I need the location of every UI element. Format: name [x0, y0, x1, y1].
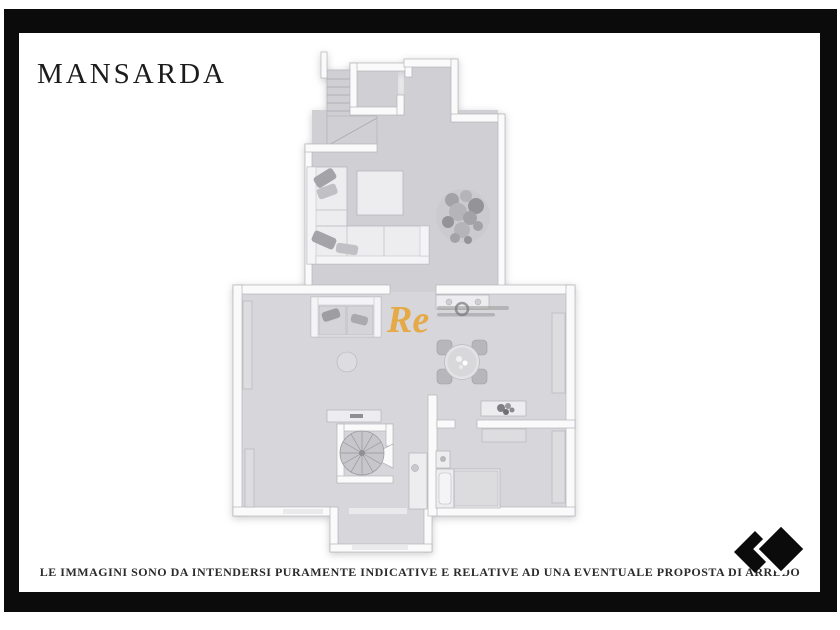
spiral-staircase [340, 431, 384, 475]
left-wall-radiator-top [243, 301, 252, 389]
watermark-company-text [437, 306, 509, 310]
window-band [283, 509, 323, 514]
agency-logo [725, 518, 815, 582]
wardrobe [409, 453, 427, 509]
desk-with-plant [481, 401, 526, 416]
dining-set [437, 340, 487, 384]
entry-landing-floor [356, 70, 398, 108]
right-wall-cabinet-top [552, 313, 565, 393]
single-bed [436, 469, 500, 508]
page: { "header": { "title": "MANSARDA" }, "wa… [0, 0, 840, 630]
right-wall-cabinet-bottom [552, 431, 565, 503]
balcony-door-window [349, 508, 407, 514]
balcony-window [352, 545, 408, 550]
console-shelf [327, 410, 381, 422]
round-pouf [337, 352, 357, 372]
double-diamond-icon [734, 524, 806, 574]
page-title: MANSARDA [37, 58, 227, 91]
square-table [357, 171, 403, 215]
left-wall-radiator-bottom [245, 449, 254, 507]
living-sofa [311, 297, 381, 337]
watermark-text: Re [386, 299, 429, 341]
disclaimer-text: LE IMMAGINI SONO DA INTENDERSI PURAMENTE… [30, 565, 810, 580]
floor-plan: Re [0, 0, 840, 630]
dresser [482, 429, 526, 442]
nightstand [436, 451, 450, 468]
